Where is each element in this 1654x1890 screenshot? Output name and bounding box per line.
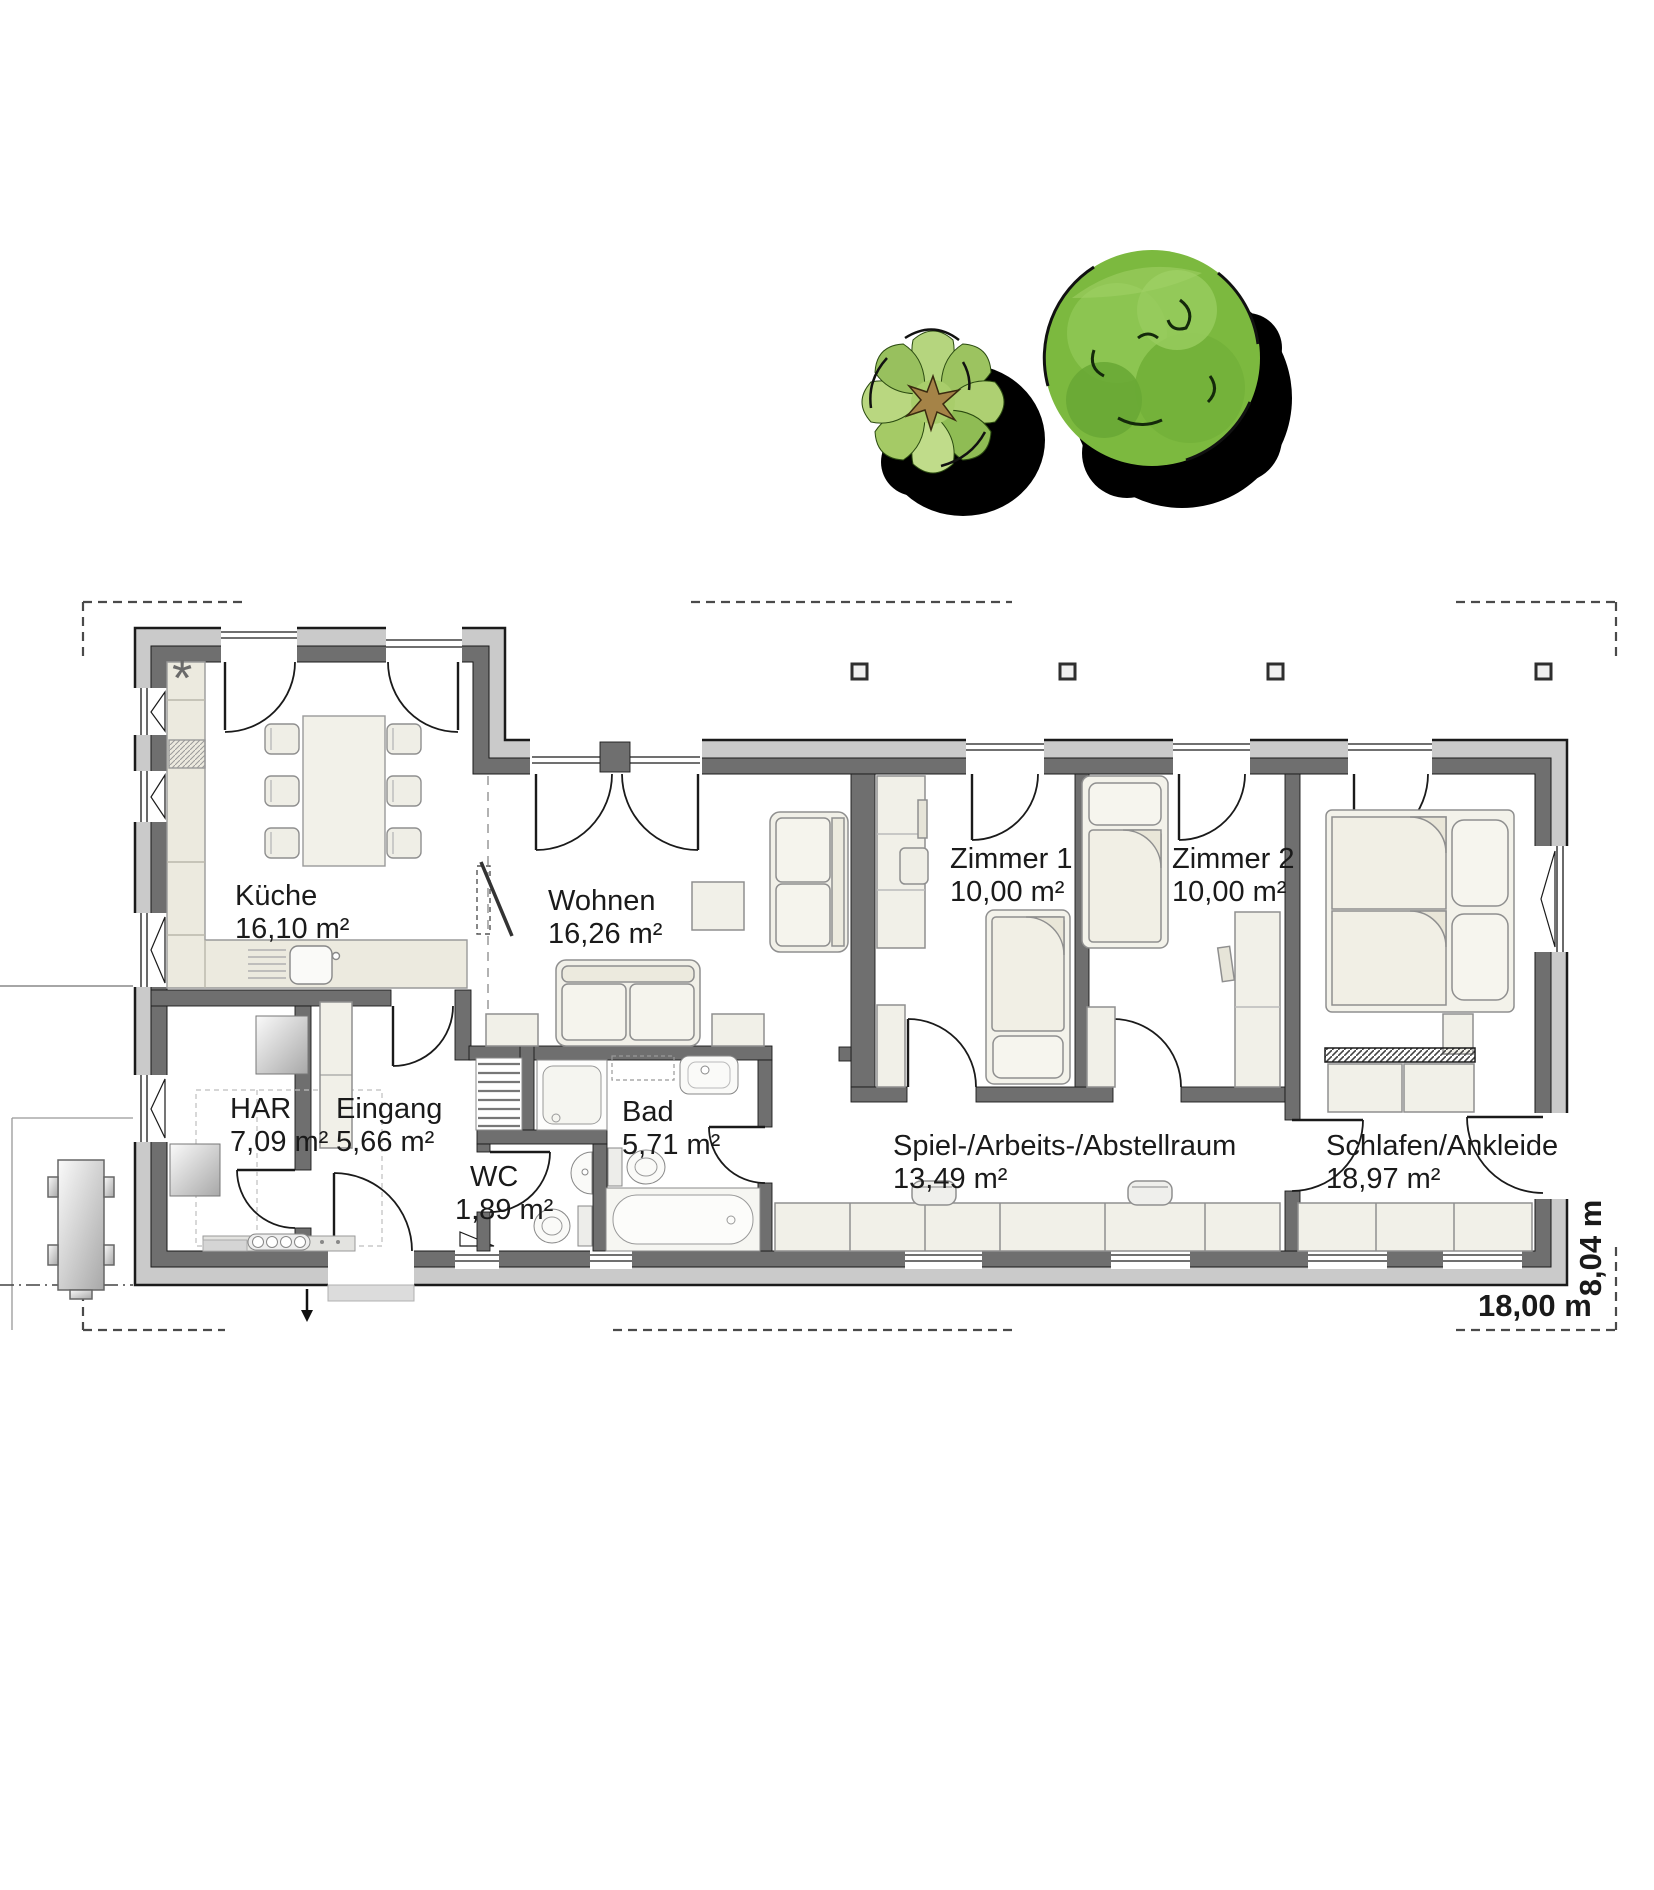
sink-icon (290, 946, 332, 984)
wardrobe-rail (1325, 1048, 1475, 1062)
cabinet (1087, 1007, 1115, 1087)
wardrobe-box (1328, 1064, 1402, 1112)
pillow (1089, 783, 1161, 825)
kitchen-marker-symbol: * (172, 650, 192, 708)
floorplan-page: * (0, 0, 1654, 1890)
coffee-table (692, 882, 744, 930)
toilet-tank (578, 1206, 592, 1246)
chair (900, 848, 928, 884)
door-step (328, 1285, 414, 1301)
floorplan-canvas: * (0, 0, 1654, 1890)
dining-table (303, 716, 385, 866)
room-label-spielraum-name: Spiel-/Arbeits-/Abstellraum (893, 1130, 1236, 1162)
room-label-wc-area: 1,89 m² (455, 1194, 554, 1226)
room-label-zimmer2-name: Zimmer 2 (1172, 843, 1294, 875)
garden-table (48, 1160, 114, 1299)
coat-rack-icon (476, 1058, 522, 1130)
room-label-har-area: 7,09 m² (230, 1126, 329, 1158)
large-tree (1044, 250, 1292, 508)
room-label-kueche-name: Küche (235, 880, 317, 912)
room-label-bad-area: 5,71 m² (622, 1129, 721, 1161)
room-label-kueche-area: 16,10 m² (235, 913, 350, 945)
pillow (993, 1036, 1063, 1078)
pergola-posts (852, 664, 1551, 679)
desk (1235, 912, 1280, 1087)
pillow (1452, 820, 1508, 906)
room-label-schlafen-area: 18,97 m² (1326, 1163, 1441, 1195)
room-label-wohnen-area: 16,26 m² (548, 918, 663, 950)
dryer-icon (170, 1144, 220, 1196)
side-table (712, 1014, 764, 1046)
washing-machine-icon (256, 1016, 308, 1074)
closet-row (1298, 1203, 1532, 1251)
room-label-zimmer1-area: 10,00 m² (950, 876, 1065, 908)
monitor-icon (918, 800, 927, 838)
room-label-eingang-area: 5,66 m² (336, 1126, 435, 1158)
room-label-spielraum-area: 13,49 m² (893, 1163, 1008, 1195)
toilet-tank (608, 1148, 622, 1186)
pillow (1452, 914, 1508, 1000)
room-label-wc-name: WC (470, 1161, 518, 1193)
dimension-depth-label: 8,04 m (1573, 1200, 1608, 1297)
faucet-icon (333, 953, 340, 960)
room-label-har-name: HAR (230, 1093, 291, 1125)
stove-icon (169, 740, 205, 768)
wardrobe-box (1404, 1064, 1474, 1112)
entrance-area (301, 1285, 414, 1322)
cabinet (877, 1005, 905, 1087)
room-label-bad-name: Bad (622, 1096, 674, 1128)
room-label-eingang-name: Eingang (336, 1093, 442, 1125)
room-label-wohnen-name: Wohnen (548, 885, 656, 917)
room-label-zimmer2-area: 10,00 m² (1172, 876, 1287, 908)
small-tree (862, 329, 1045, 516)
side-table (486, 1014, 538, 1046)
room-label-zimmer1-name: Zimmer 1 (950, 843, 1072, 875)
stool (1128, 1181, 1172, 1205)
room-label-schlafen-name: Schlafen/Ankleide (1326, 1130, 1558, 1162)
